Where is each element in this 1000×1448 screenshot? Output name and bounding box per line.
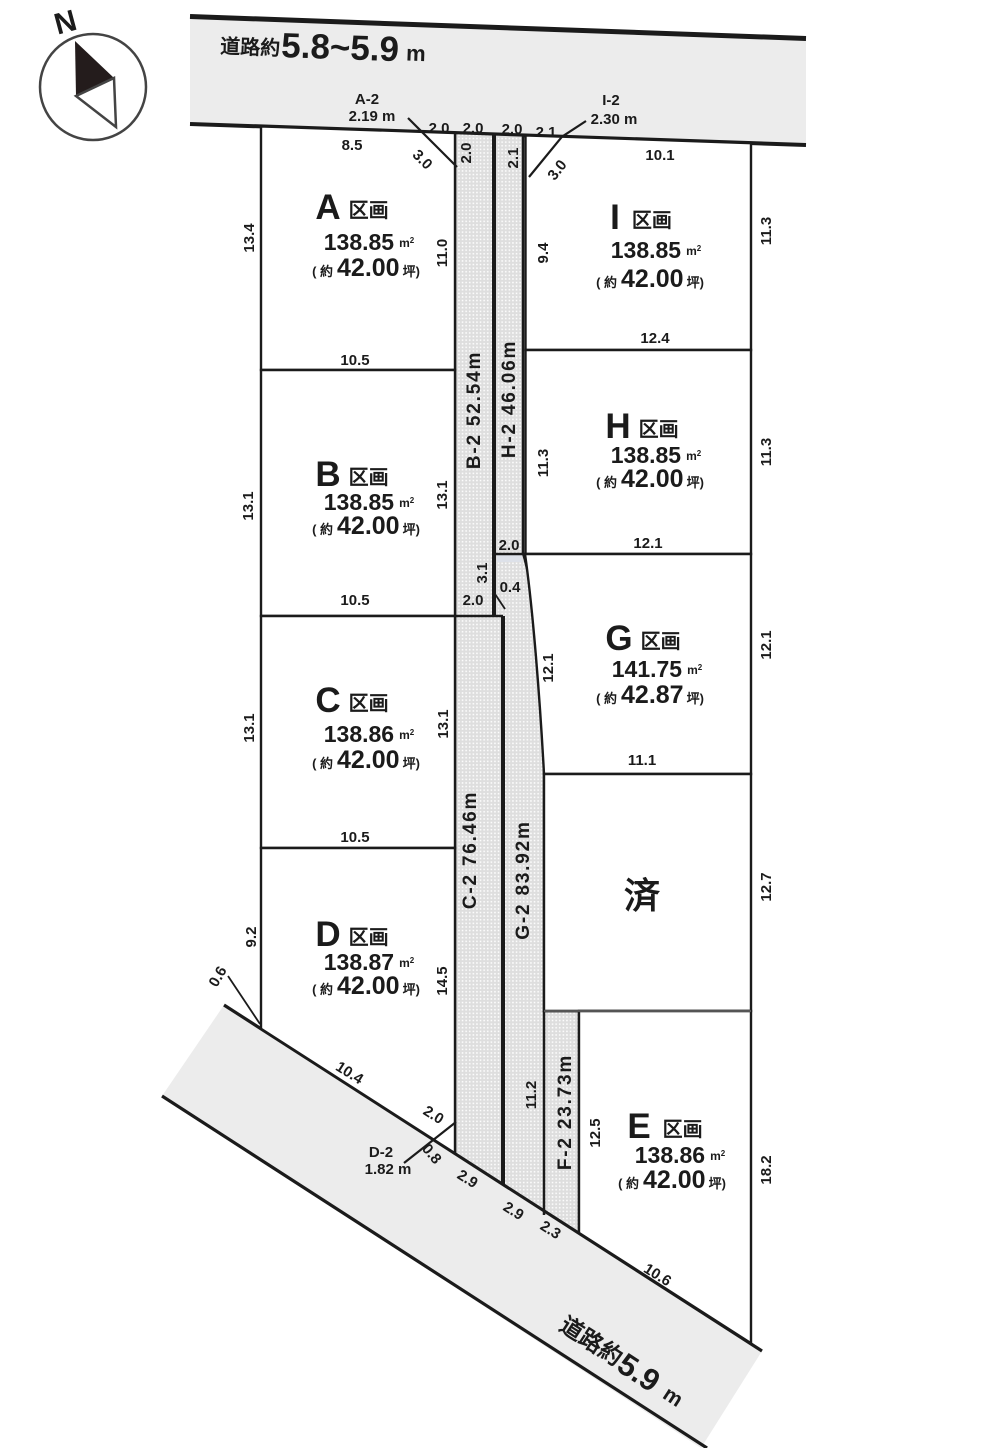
svg-text:8.5: 8.5 — [342, 137, 363, 154]
svg-text:2.30 m: 2.30 m — [591, 111, 638, 128]
svg-text:m: m — [406, 41, 426, 67]
svg-text:12.5: 12.5 — [587, 1118, 604, 1147]
svg-text:13.1: 13.1 — [434, 480, 451, 509]
svg-text:A-2: A-2 — [355, 91, 379, 108]
svg-text:5.8~5.9: 5.8~5.9 — [281, 26, 400, 69]
svg-text:1.82 m: 1.82 m — [365, 1161, 412, 1178]
svg-text:2.0: 2.0 — [499, 537, 520, 554]
svg-text:12.1: 12.1 — [758, 630, 775, 659]
svg-text:済: 済 — [624, 875, 660, 916]
svg-text:2.1: 2.1 — [536, 124, 557, 141]
svg-text:3.1: 3.1 — [474, 563, 491, 584]
svg-text:14.5: 14.5 — [434, 966, 451, 995]
svg-text:2.1: 2.1 — [505, 148, 522, 169]
svg-text:10.5: 10.5 — [340, 592, 369, 609]
svg-text:10.5: 10.5 — [340, 829, 369, 846]
svg-text:C-2 76.46m: C-2 76.46m — [460, 791, 481, 909]
svg-text:0.4: 0.4 — [500, 579, 522, 596]
svg-text:2.0: 2.0 — [502, 121, 523, 138]
svg-text:道路約: 道路約 — [220, 34, 281, 60]
svg-text:G-2 83.92m: G-2 83.92m — [513, 820, 534, 939]
svg-text:H-2 46.06m: H-2 46.06m — [499, 340, 520, 458]
svg-text:D-2: D-2 — [369, 1144, 393, 1161]
svg-text:2.0: 2.0 — [458, 143, 475, 164]
svg-text:12.7: 12.7 — [758, 872, 775, 901]
svg-text:13.1: 13.1 — [241, 713, 258, 742]
svg-text:13.4: 13.4 — [241, 223, 258, 253]
svg-text:11.2: 11.2 — [523, 1081, 540, 1109]
svg-text:2.0: 2.0 — [463, 120, 484, 137]
svg-text:0.6: 0.6 — [206, 963, 231, 990]
svg-text:B-2 52.54m: B-2 52.54m — [464, 351, 485, 469]
svg-text:12.4: 12.4 — [640, 330, 670, 347]
svg-text:11.3: 11.3 — [535, 449, 552, 477]
svg-text:11.3: 11.3 — [758, 438, 775, 466]
svg-text:2.19 m: 2.19 m — [349, 108, 396, 125]
svg-text:N: N — [51, 4, 80, 41]
svg-text:12.1: 12.1 — [633, 535, 662, 552]
svg-text:10.5: 10.5 — [340, 352, 369, 369]
svg-text:I-2: I-2 — [602, 92, 620, 109]
svg-text:F-2 23.73m: F-2 23.73m — [555, 1054, 576, 1170]
svg-text:12.1: 12.1 — [540, 653, 557, 682]
svg-text:10.1: 10.1 — [645, 147, 674, 164]
svg-text:11.3: 11.3 — [758, 217, 775, 245]
svg-text:9.4: 9.4 — [535, 242, 552, 264]
svg-text:13.1: 13.1 — [240, 491, 257, 520]
svg-text:18.2: 18.2 — [758, 1155, 775, 1184]
svg-text:2.0: 2.0 — [463, 592, 484, 609]
svg-text:2.0: 2.0 — [429, 120, 450, 137]
svg-text:9.2: 9.2 — [243, 927, 260, 948]
svg-text:13.1: 13.1 — [435, 709, 452, 738]
svg-text:11.1: 11.1 — [628, 752, 656, 769]
svg-text:11.0: 11.0 — [434, 239, 451, 267]
